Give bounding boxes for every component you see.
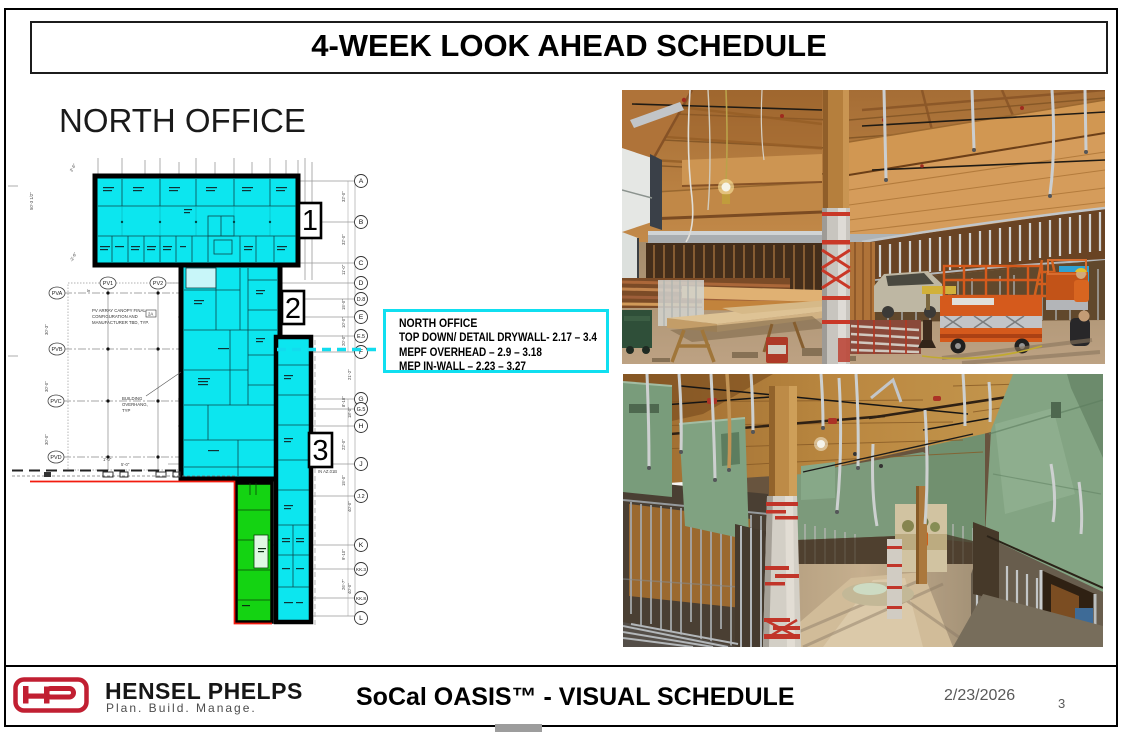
svg-text:20'-0": 20'-0" [341,335,346,346]
svg-text:J.2: J.2 [357,494,364,500]
svg-text:KK.3: KK.3 [356,567,366,572]
svg-text:11'-0": 11'-0" [341,264,346,275]
svg-text:1: 1 [302,205,318,237]
svg-text:10'-0": 10'-0" [341,317,346,328]
svg-text:G: G [358,396,363,403]
svg-text:8'-10": 8'-10" [341,396,346,407]
svg-text:E: E [359,314,364,321]
svg-text:BUILDING: BUILDING [122,396,143,401]
svg-text:18'-0": 18'-0" [347,407,352,418]
svg-text:B: B [359,219,364,226]
svg-text:30'-3": 30'-3" [44,324,49,335]
svg-text:D.8: D.8 [357,297,365,303]
svg-text:IN AZ.01B: IN AZ.01B [318,469,337,474]
svg-text:TYP: TYP [122,408,130,413]
svg-text:9'-10": 9'-10" [341,549,346,560]
svg-text:A: A [359,178,364,185]
svg-text:PVA: PVA [52,291,63,297]
svg-text:-2'-6": -2'-6" [69,251,78,262]
svg-text:26'-7": 26'-7" [341,579,346,590]
svg-text:PVB: PVB [51,347,62,353]
svg-text:E.5: E.5 [357,334,365,340]
svg-text:22'-0": 22'-0" [341,439,346,450]
svg-text:KK.8: KK.8 [356,596,366,601]
svg-text:D: D [359,280,364,287]
svg-text:21'-2": 21'-2" [347,369,352,380]
svg-text:15'-0": 15'-0" [341,475,346,486]
svg-text:2A: 2A [148,312,153,317]
svg-text:2'-6": 2'-6" [69,162,78,172]
svg-text:2: 2 [285,293,301,325]
svg-text:5'-0": 5'-0" [121,462,130,467]
svg-text:3: 3 [312,435,328,467]
svg-text:C: C [359,260,364,267]
svg-text:1'-0": 1'-0" [103,457,112,462]
svg-text:40'-0": 40'-0" [347,583,352,594]
svg-text:32'-0": 32'-0" [341,191,346,202]
svg-text:PVD: PVD [50,455,61,461]
svg-text:30'-0": 30'-0" [44,434,49,445]
svg-text:PV1: PV1 [103,281,113,287]
svg-text:MANUFACTURER TBD, TYP.: MANUFACTURER TBD, TYP. [92,320,149,325]
svg-text:30'-0": 30'-0" [44,381,49,392]
svg-text:G.5: G.5 [357,407,366,413]
svg-text:CONFIGURATION AND: CONFIGURATION AND [92,314,138,319]
svg-text:PV2: PV2 [153,281,163,287]
svg-text:PVC: PVC [50,399,61,405]
svg-text:J: J [359,461,362,468]
svg-text:50'-3 1/2": 50'-3 1/2" [29,192,34,210]
svg-text:K: K [359,542,364,549]
svg-text:L: L [359,615,363,622]
svg-text:40'-0": 40'-0" [347,501,352,512]
svg-text:H: H [359,423,364,430]
svg-text:OVERHANG,: OVERHANG, [122,402,148,407]
svg-text:5': 5' [86,289,91,292]
svg-text:PV ARRAY CANOPY FINAL: PV ARRAY CANOPY FINAL [92,308,146,313]
svg-text:32'-0": 32'-0" [341,234,346,245]
svg-text:15'-0": 15'-0" [341,299,346,310]
